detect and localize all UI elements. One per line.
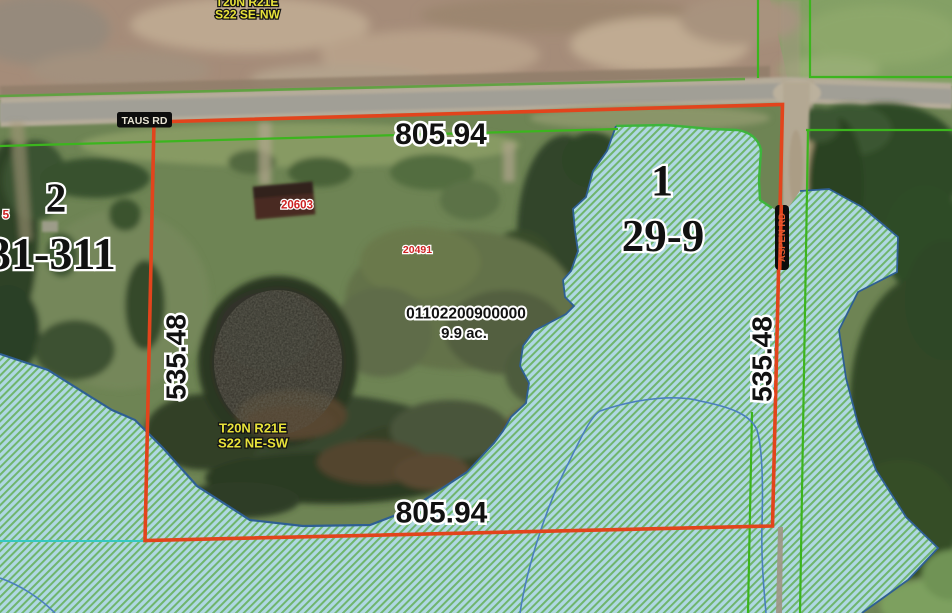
svg-text:2: 2 <box>46 175 67 221</box>
svg-text:5: 5 <box>3 208 10 222</box>
svg-text:9.9 ac.: 9.9 ac. <box>441 325 487 342</box>
svg-text:535.48: 535.48 <box>747 316 778 402</box>
svg-text:01102200900000: 01102200900000 <box>406 306 526 323</box>
svg-text:S22 NE-SW: S22 NE-SW <box>218 436 289 451</box>
svg-text:S22 SE-NW: S22 SE-NW <box>215 8 280 22</box>
svg-text:31-311: 31-311 <box>0 228 116 279</box>
svg-text:20603: 20603 <box>281 200 313 212</box>
svg-text:535.48: 535.48 <box>161 314 192 400</box>
svg-text:29-9: 29-9 <box>622 211 705 261</box>
svg-text:ASPEN RD: ASPEN RD <box>777 213 788 262</box>
svg-text:1: 1 <box>651 156 673 205</box>
svg-text:T20N R21E: T20N R21E <box>219 421 287 436</box>
svg-text:805.94: 805.94 <box>395 118 487 151</box>
svg-text:TAUS RD: TAUS RD <box>122 115 168 127</box>
svg-text:20491: 20491 <box>403 244 432 256</box>
svg-text:805.94: 805.94 <box>396 497 488 530</box>
